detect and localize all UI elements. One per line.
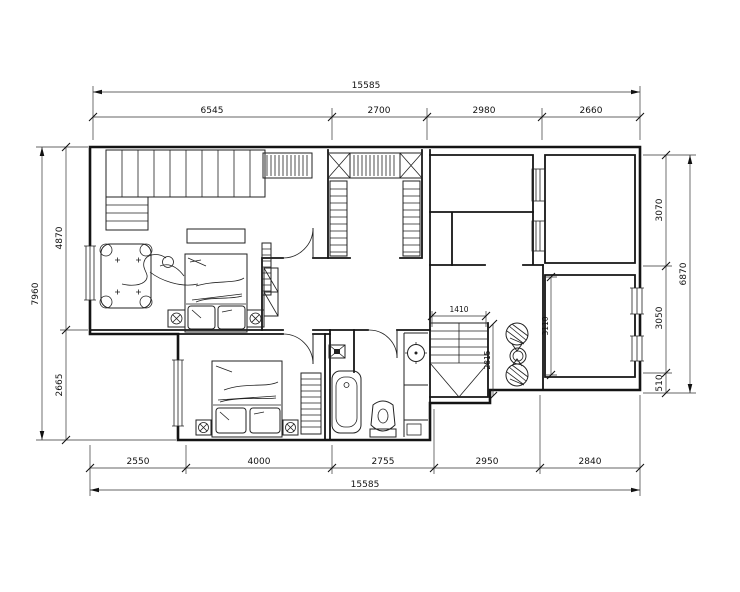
plant-icon <box>506 323 528 351</box>
nightstand-lamp <box>196 420 211 435</box>
window-divider-1 <box>532 169 545 201</box>
windows <box>84 169 644 426</box>
dim-bottom-3: 2755 <box>372 457 395 467</box>
bathtub <box>332 371 361 433</box>
dim-stair-width: 1410 <box>449 305 468 314</box>
nightstand-lamp <box>168 310 185 327</box>
floor-plan-canvas: 15585 6545 2700 2980 2660 2550 4000 2755… <box>0 0 740 592</box>
dim-left-total: 7960 <box>31 282 41 305</box>
dim-right-total: 6870 <box>679 262 689 285</box>
toilet <box>370 401 396 437</box>
dim-bottom-5: 2840 <box>579 457 602 467</box>
dim-room-depth: 3110 <box>541 316 550 335</box>
dim-top-1: 6545 <box>201 106 224 116</box>
nightstand-lamp <box>283 420 298 435</box>
staircase-upper-left <box>106 150 265 230</box>
reclining-figure <box>122 255 198 286</box>
dim-left-1: 4870 <box>55 226 65 249</box>
dimension-top: 15585 6545 2700 2980 2660 <box>89 81 644 140</box>
door-master <box>283 228 313 258</box>
dim-bottom-4: 2950 <box>476 457 499 467</box>
door-bathroom <box>369 330 397 358</box>
dim-right-3: 510 <box>655 374 665 391</box>
bed-master <box>168 254 264 332</box>
dim-bottom-total: 15585 <box>351 480 380 490</box>
dim-right-1: 3070 <box>655 198 665 221</box>
window-divider-2 <box>532 221 545 251</box>
dimension-bottom: 2550 4000 2755 2950 2840 15585 <box>86 395 644 496</box>
dim-bottom-1: 2550 <box>127 457 150 467</box>
bathroom-fixtures <box>329 333 428 437</box>
wall-shelf-master <box>262 243 271 295</box>
floor-plan-drawing: 15585 6545 2700 2980 2660 2550 4000 2755… <box>0 0 740 592</box>
dim-right-2: 3050 <box>655 306 665 329</box>
sofa <box>100 244 198 308</box>
dim-bottom-2: 4000 <box>248 457 271 467</box>
floor-drain-icon <box>329 345 345 358</box>
dim-left-2: 2665 <box>55 374 65 397</box>
dimension-interior: 1410 2815 3110 <box>428 273 557 400</box>
tv-cabinet <box>187 229 245 243</box>
interior-walls <box>90 150 635 440</box>
dim-top-2: 2700 <box>368 106 391 116</box>
dim-stair-depth: 2815 <box>483 350 492 369</box>
wardrobe-master-top <box>263 153 312 178</box>
dimension-right: 3070 3050 510 6870 <box>643 151 696 397</box>
dim-top-4: 2660 <box>580 106 603 116</box>
plant-icon <box>506 359 528 386</box>
bed-guest <box>196 361 298 437</box>
bedroom-shelf <box>301 373 321 434</box>
walk-in-closet <box>328 153 422 256</box>
washbasin-counter <box>404 333 428 437</box>
dim-top-3: 2980 <box>473 106 496 116</box>
dim-top-total: 15585 <box>352 81 381 91</box>
staircase-lower-right <box>430 323 488 397</box>
doors <box>283 228 397 364</box>
door-bedroom2 <box>283 334 313 364</box>
